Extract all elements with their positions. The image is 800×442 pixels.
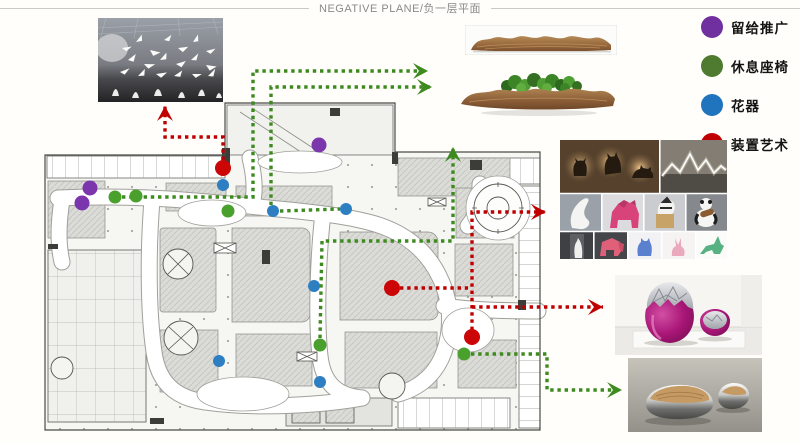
floor-plan-drawing	[45, 103, 540, 430]
steel-pebbles-photo	[628, 358, 762, 432]
plan-marker-planter	[340, 203, 352, 215]
pink-elephant-tile	[594, 232, 627, 259]
plan-marker-seating	[314, 339, 327, 352]
plan-marker-art	[464, 329, 480, 345]
plan-marker-planter	[217, 179, 229, 191]
pink-pug-tile	[602, 194, 643, 231]
wave-planter-photo	[455, 64, 620, 118]
promo-dot-icon	[701, 16, 723, 38]
mountain-light-tile	[660, 140, 727, 193]
legend-label-art: 装置艺术	[731, 134, 789, 154]
legend-item-planter: 花器	[700, 93, 800, 117]
plan-marker-planter	[213, 355, 225, 367]
plan-marker-seating	[109, 191, 122, 204]
pink-rabbit-tile	[662, 232, 695, 259]
legend-label-promo: 留给推广	[731, 17, 789, 37]
raccoon-tile	[644, 194, 685, 231]
legend-label-planter: 花器	[731, 95, 760, 115]
plan-marker-art	[384, 280, 400, 296]
green-dino-tile	[696, 232, 727, 259]
paper-birds-photo	[98, 18, 223, 102]
plan-marker-promo	[83, 181, 98, 196]
white-sculpture-tile	[560, 194, 601, 231]
wave-planter-shape	[461, 89, 615, 110]
plan-marker-seating	[130, 190, 143, 203]
planter-dot-icon	[701, 94, 723, 116]
plan-marker-seating	[222, 205, 235, 218]
legend-item-promo: 留给推广	[700, 15, 800, 39]
arrowhead-icon	[157, 106, 173, 121]
plan-marker-art	[215, 160, 231, 176]
plan-marker-promo	[75, 196, 90, 211]
cracked-egg-photo	[615, 275, 762, 355]
white-cat-tile	[560, 232, 593, 259]
plan-marker-promo	[312, 138, 327, 153]
legend-item-seating: 休息座椅	[700, 54, 800, 78]
seating-dot-icon	[701, 55, 723, 77]
cat-lights-tile	[560, 140, 659, 193]
plan-marker-planter	[308, 280, 320, 292]
panda-guitar-tile	[686, 194, 727, 231]
wave-bench-photo	[465, 25, 617, 55]
legend-label-seating: 休息座椅	[731, 56, 789, 76]
flow-line-green-6	[280, 209, 340, 211]
blue-cat-tile	[628, 232, 661, 259]
arrowhead-icon	[417, 79, 432, 95]
flow-line-red-0	[165, 106, 223, 160]
plan-marker-seating	[458, 348, 471, 361]
plan-marker-planter	[267, 205, 279, 217]
animal-art-collage-photo	[560, 140, 727, 259]
plan-marker-planter	[314, 376, 326, 388]
presentation-slide: NEGATIVE PLANE/负一层平面	[0, 0, 800, 442]
